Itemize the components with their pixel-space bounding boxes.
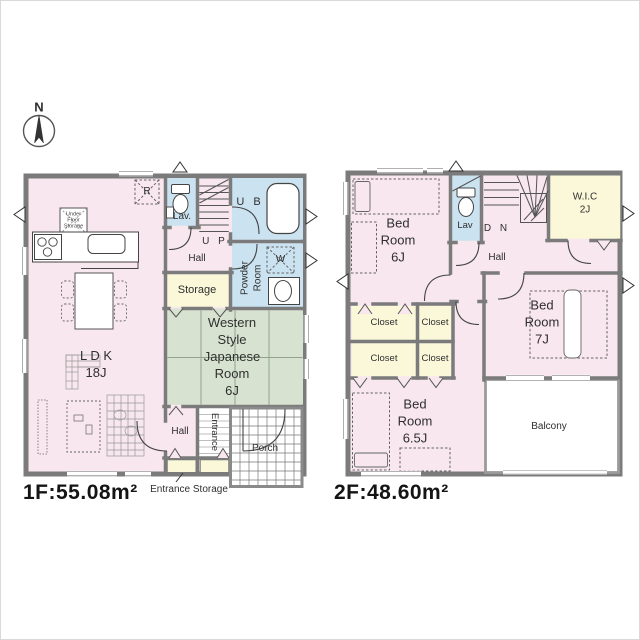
kitchen-sink-icon [88,235,125,254]
floor-2f-area-label: 2F:48.60m² [334,481,449,505]
bathtub-icon [267,184,299,234]
compass-icon [24,115,55,147]
floor-2f-plan [337,161,634,476]
porch-tiles [231,408,303,487]
closet-bottom-right [419,343,451,376]
room-balcony [486,380,619,473]
room-wic [550,176,620,239]
under-floor-storage-box [60,208,87,234]
floorplan-drawing [1,1,639,639]
floor-1f-area-label: 1F:55.08m² [23,481,138,505]
closet-top-right [419,306,451,340]
vanity-sink-icon [269,278,300,305]
closet-bottom-left [352,343,416,376]
floor-1f-plan [14,162,317,487]
entrance-storage-right [200,460,229,473]
floorplan-canvas: N L D K 18J Lav. U P Hall U B Powder Roo… [0,0,640,640]
stove-icon [35,235,62,260]
entrance-storage-left [167,460,196,473]
room-storage [167,274,229,307]
